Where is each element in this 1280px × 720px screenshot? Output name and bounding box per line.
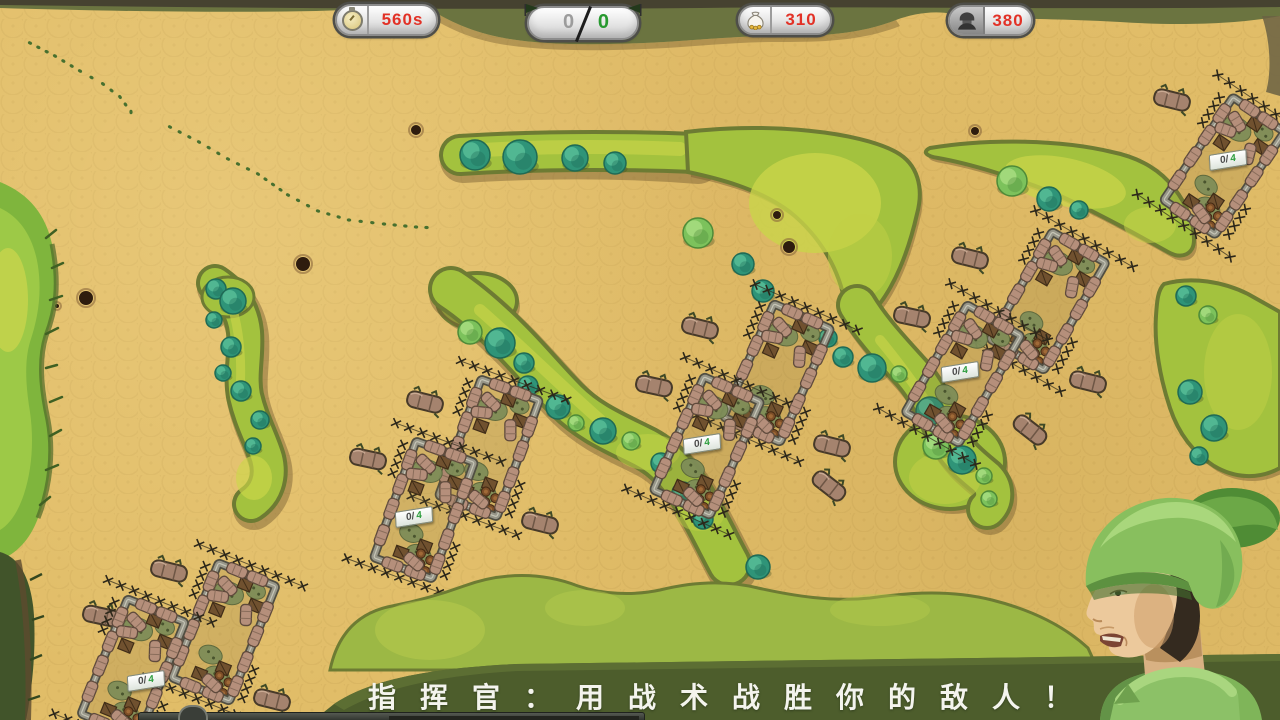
sandbag-emplacement[interactable]: [680, 311, 721, 344]
moneybag-icon: [747, 11, 764, 30]
sandbag-emplacement[interactable]: [1152, 83, 1193, 116]
sandbag-emplacement[interactable]: [149, 554, 190, 587]
sandbag-emplacement[interactable]: [348, 443, 388, 475]
commander-message: 指挥官：用战术战胜你的敌人！: [368, 676, 1168, 714]
flag-icon: [626, 2, 642, 17]
score-right: 0: [598, 11, 609, 34]
sandbag-emplacement[interactable]: [950, 241, 991, 274]
left-terrain-strip: [0, 182, 63, 720]
sandbag-emplacement[interactable]: [1008, 409, 1052, 451]
sandbag-emplacement[interactable]: [807, 465, 851, 507]
money-value: 310: [772, 7, 830, 33]
commander-portrait: [1080, 488, 1280, 720]
build-panel-emblem-icon[interactable]: [178, 705, 208, 720]
bush-teal: [732, 253, 756, 275]
score-left: 0: [563, 11, 574, 34]
game-screen: 指挥官：用战术战胜你的敌人！ 0/40/40/40/40/4: [0, 0, 1280, 720]
troops-badge: 380: [948, 5, 1033, 36]
sandbag-emplacement[interactable]: [1068, 365, 1109, 398]
score-divider: [575, 6, 592, 42]
bush-light: [683, 218, 715, 248]
build-panel-strip: [389, 716, 639, 720]
flag-icon: [524, 2, 540, 17]
sandbag-emplacement[interactable]: [812, 429, 853, 462]
stopwatch-icon: [342, 10, 363, 31]
timer-badge: 560s: [335, 4, 438, 36]
sandbag-emplacement[interactable]: [405, 385, 446, 418]
soldier-head-icon: [957, 11, 977, 30]
sandbag-emplacement[interactable]: [520, 506, 561, 539]
bush-teal: [833, 347, 855, 367]
money-badge: 310: [738, 5, 832, 35]
sandbag-emplacement[interactable]: [634, 370, 674, 402]
timer-value: 560s: [369, 6, 436, 34]
troops-value: 380: [985, 7, 1031, 34]
bush-teal: [746, 555, 772, 579]
score-counter: 0 0: [527, 6, 639, 40]
bottom-hills: [330, 576, 1098, 671]
footprint-trails: [27, 41, 428, 230]
